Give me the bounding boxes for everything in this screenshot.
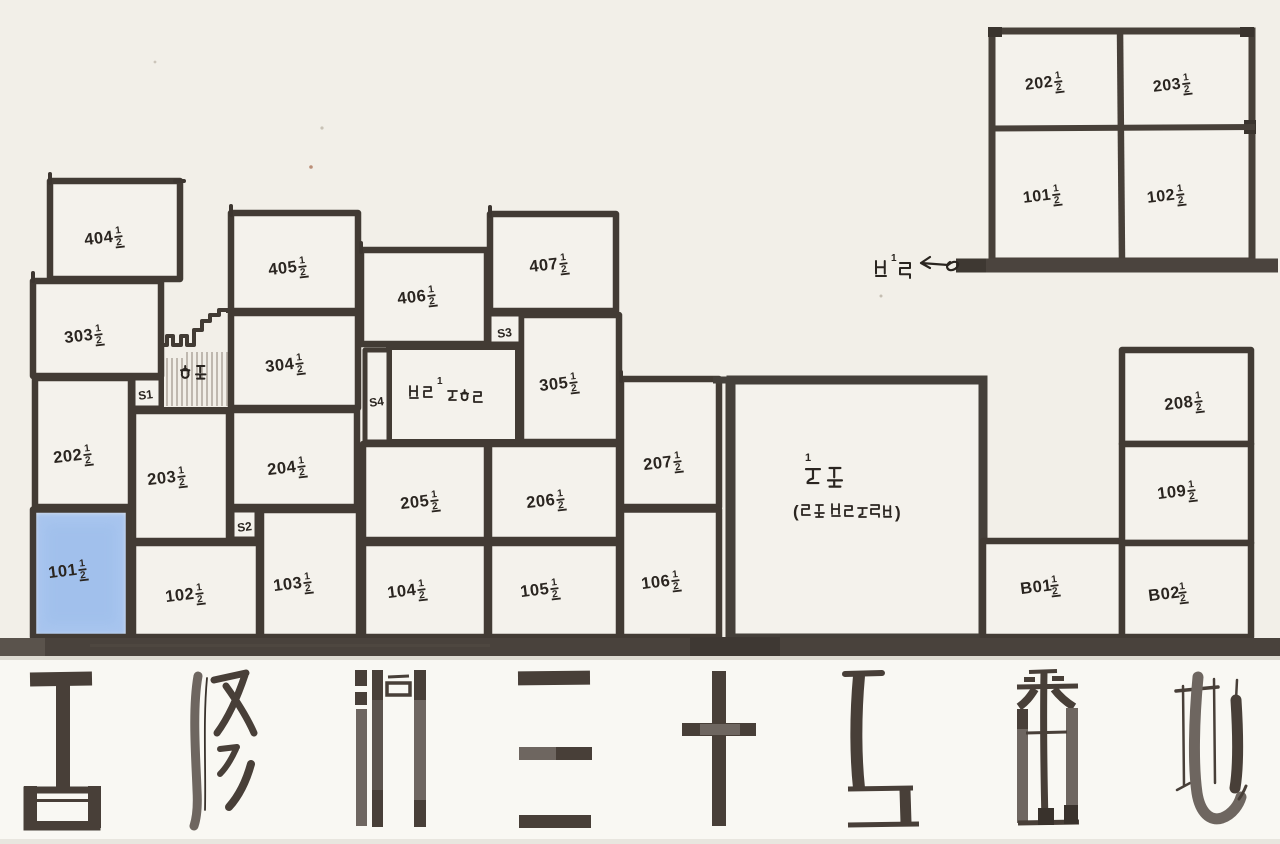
svg-text:106: 106	[640, 572, 671, 593]
svg-text:1: 1	[805, 452, 811, 464]
svg-text:305: 305	[538, 374, 569, 395]
svg-text:202: 202	[1024, 74, 1054, 94]
svg-text:203: 203	[146, 468, 177, 489]
svg-text:1: 1	[891, 253, 897, 264]
svg-text:S3: S3	[496, 325, 513, 341]
svg-text:103: 103	[272, 574, 303, 595]
svg-text:405: 405	[267, 258, 298, 279]
svg-text:208: 208	[1163, 393, 1194, 414]
svg-text:304: 304	[264, 355, 295, 376]
svg-text:204: 204	[266, 458, 297, 479]
svg-text:B01: B01	[1019, 576, 1053, 598]
svg-text:B02: B02	[1147, 583, 1181, 605]
svg-text:101: 101	[47, 561, 78, 582]
svg-text:207: 207	[642, 453, 673, 474]
svg-text:101: 101	[1022, 187, 1052, 207]
svg-text:203: 203	[1152, 76, 1182, 96]
svg-text:S2: S2	[236, 519, 253, 535]
svg-text:205: 205	[399, 492, 430, 513]
svg-text:104: 104	[386, 581, 417, 602]
svg-text:407: 407	[528, 255, 559, 276]
svg-text:102: 102	[164, 585, 195, 606]
svg-text:206: 206	[525, 491, 556, 512]
svg-text:109: 109	[1156, 482, 1187, 503]
svg-text:303: 303	[63, 326, 94, 347]
svg-text:S1: S1	[137, 387, 154, 403]
svg-text:202: 202	[52, 446, 83, 467]
svg-text:): )	[895, 503, 901, 522]
svg-text:1: 1	[437, 376, 443, 387]
svg-text:406: 406	[396, 287, 427, 308]
svg-text:S4: S4	[368, 394, 385, 410]
svg-text:404: 404	[83, 228, 114, 249]
svg-text:105: 105	[519, 580, 550, 601]
svg-text:(: (	[793, 502, 799, 521]
svg-text:102: 102	[1146, 187, 1176, 207]
